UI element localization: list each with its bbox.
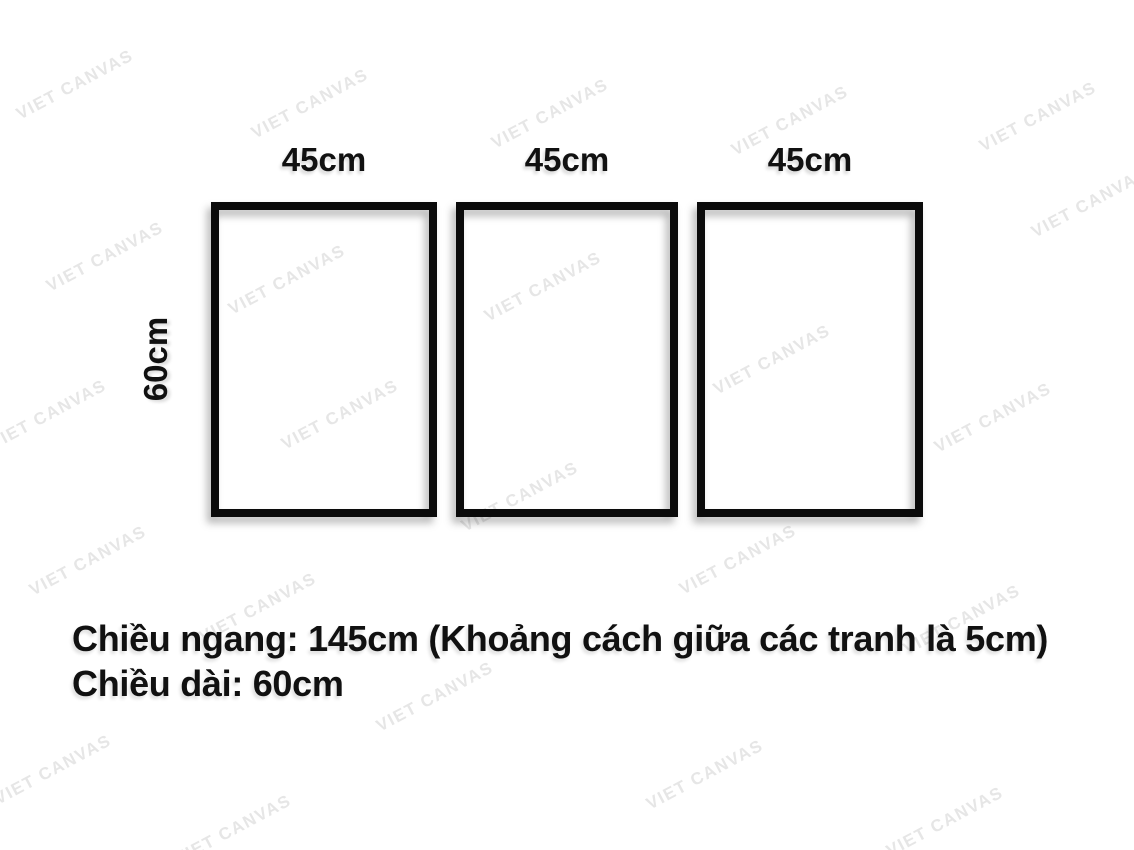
- frame-2-width-label: 45cm: [456, 138, 678, 182]
- watermark-text: VIET CANVAS: [26, 522, 150, 600]
- height-label: 60cm: [137, 317, 175, 401]
- watermark-text: VIET CANVAS: [248, 65, 372, 143]
- canvas-frame-2: [456, 202, 678, 517]
- watermark-text: VIET CANVAS: [931, 379, 1055, 457]
- watermark-text: VIET CANVAS: [976, 78, 1100, 156]
- dimension-notes: Chiều ngang: 145cm (Khoảng cách giữa các…: [72, 616, 1048, 706]
- watermark-text: VIET CANVAS: [0, 376, 110, 454]
- note-total-width: Chiều ngang: 145cm (Khoảng cách giữa các…: [72, 616, 1048, 661]
- watermark-text: VIET CANVAS: [643, 736, 767, 814]
- watermark-text: VIET CANVAS: [43, 218, 167, 296]
- dimension-diagram: VIET CANVAS VIET CANVAS VIET CANVAS VIET…: [0, 0, 1134, 850]
- note-total-height: Chiều dài: 60cm: [72, 661, 1048, 706]
- canvas-frame-3: [697, 202, 923, 517]
- watermark-text: VIET CANVAS: [883, 783, 1007, 850]
- frame-3-width-label: 45cm: [697, 138, 923, 182]
- canvas-frame-1: [211, 202, 437, 517]
- frame-1-width-label: 45cm: [211, 138, 437, 182]
- watermark-text: VIET CANVAS: [13, 46, 137, 124]
- watermark-text: VIET CANVAS: [676, 521, 800, 599]
- watermark-text: VIET CANVAS: [171, 791, 295, 850]
- watermark-text: VIET CANVAS: [0, 731, 115, 809]
- watermark-text: VIET CANVAS: [1028, 164, 1134, 242]
